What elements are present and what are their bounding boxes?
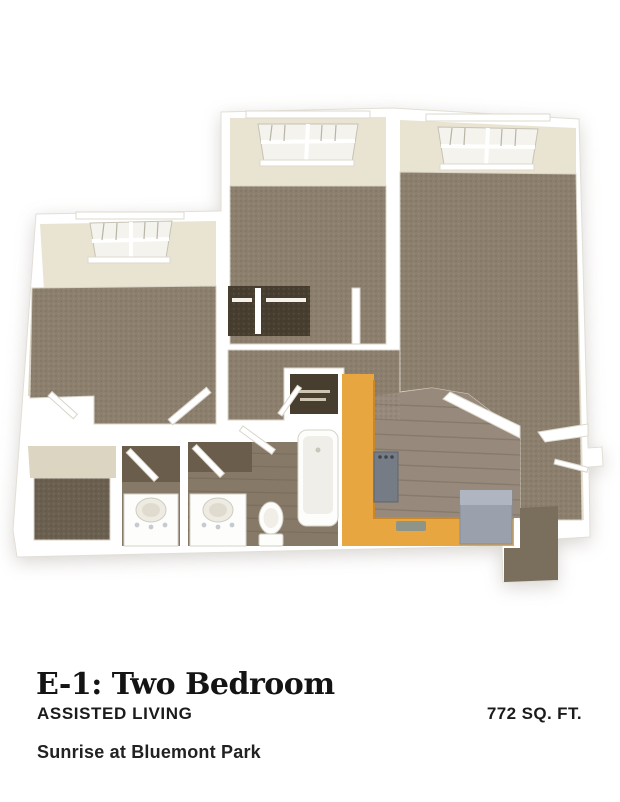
faucet-knob (216, 525, 221, 530)
toilet-seat (264, 508, 279, 528)
floor-plan-image (0, 0, 620, 620)
pantry-shelf (296, 390, 330, 393)
floor-plan (0, 0, 620, 620)
sink-bowl (209, 503, 227, 517)
stove-knob (378, 455, 382, 459)
faucet-knob (202, 523, 207, 528)
sink-bowl (142, 503, 160, 517)
plan-subrow: ASSISTED LIVING 772 SQ. FT. (37, 704, 582, 724)
faucet-knob (230, 523, 235, 528)
stove-knob (390, 455, 394, 459)
area-label: 772 SQ. FT. (487, 704, 582, 724)
pantry-shelf (300, 398, 326, 401)
door-leaf (352, 288, 360, 344)
bathtub-drain (316, 448, 321, 453)
sink-vanity (124, 494, 178, 546)
plan-type-label: ASSISTED LIVING (37, 704, 192, 724)
closet-shelf (232, 298, 252, 302)
flyer-page: E-1: Two Bedroom ASSISTED LIVING 772 SQ.… (0, 0, 620, 802)
faucet-knob (135, 523, 140, 528)
closet-divider (255, 288, 261, 334)
closet-shelf (266, 298, 306, 302)
kitchen-sink (396, 521, 426, 531)
faucet-knob (163, 523, 168, 528)
sink-vanity (190, 494, 246, 546)
bathtub (298, 430, 338, 526)
plan-name-title: E-1: Two Bedroom (36, 668, 335, 702)
stove (374, 452, 398, 502)
refrigerator-top (460, 490, 512, 505)
faucet-knob (149, 525, 154, 530)
closet-room-wall-face (28, 446, 116, 478)
community-name: Sunrise at Bluemont Park (37, 742, 261, 763)
stove-knob (384, 455, 388, 459)
toilet (259, 502, 283, 546)
